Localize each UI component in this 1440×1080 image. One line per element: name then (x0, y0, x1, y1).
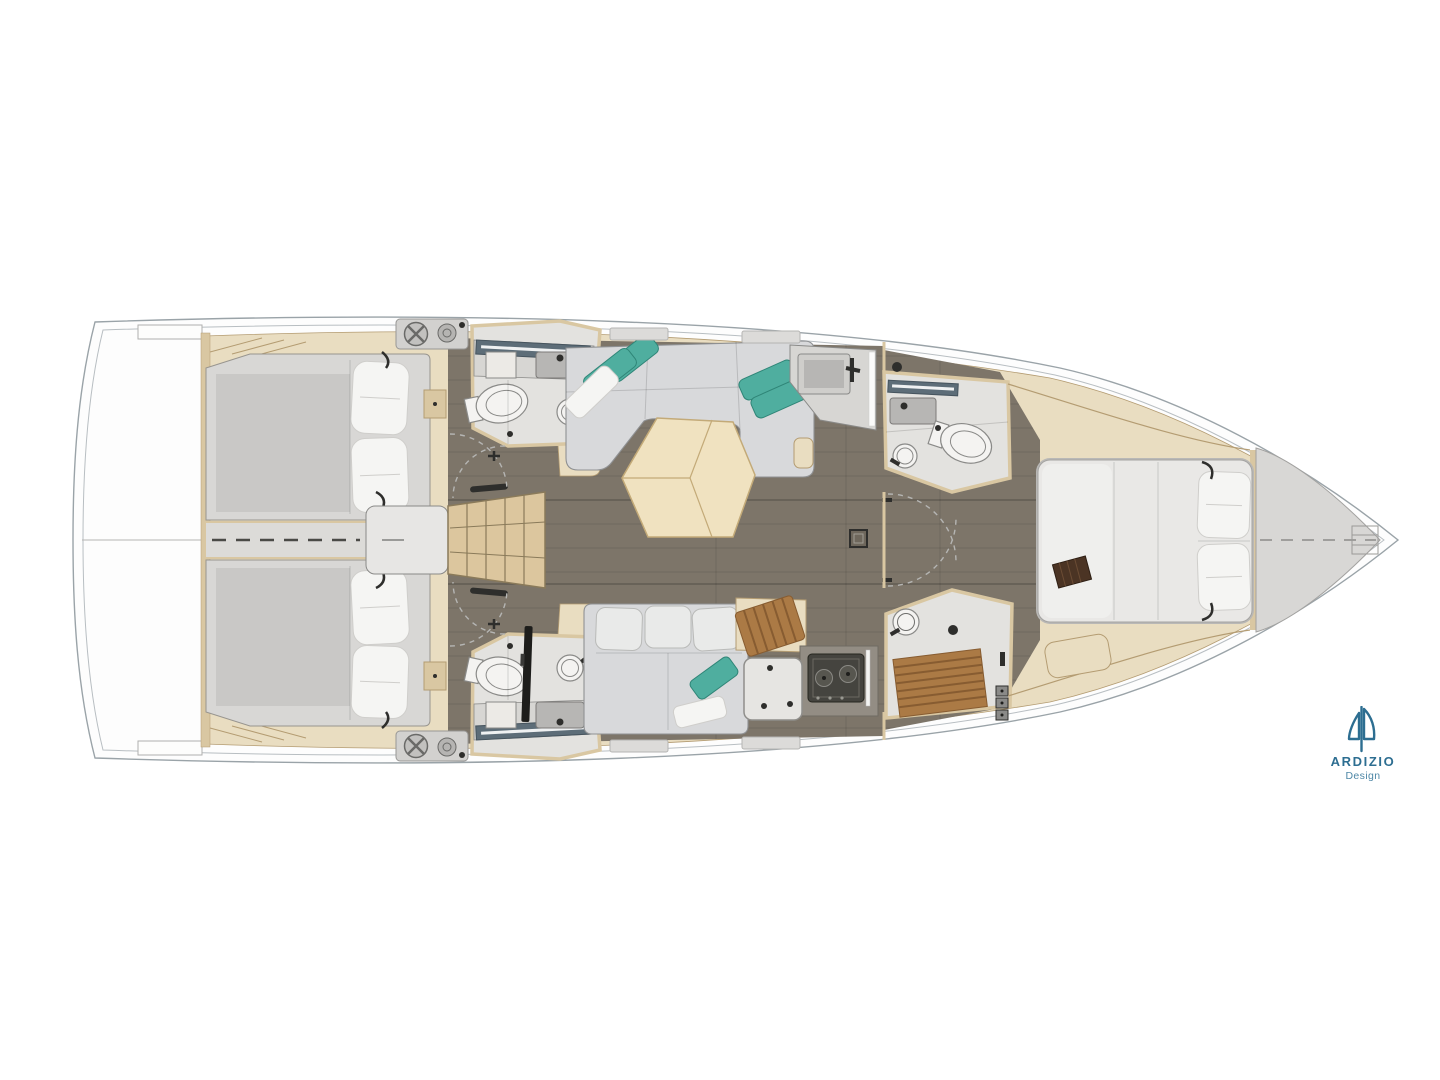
back-cushion (692, 606, 741, 651)
head-room (472, 634, 600, 759)
back-cushion (595, 607, 642, 651)
deck-hatch (610, 740, 668, 752)
teak-grate (893, 649, 987, 717)
faucet (901, 403, 908, 410)
winch-pod-starboard (396, 731, 468, 761)
aft-cabin-starboard (206, 560, 446, 728)
bow-locker (1256, 448, 1380, 632)
faucet (557, 355, 564, 362)
aft-bed-port-mattress (216, 374, 350, 512)
stern-step-port (138, 325, 202, 339)
floorplan-drawing (0, 0, 1440, 1080)
head-forward (884, 362, 1010, 492)
winch-pod-port (396, 319, 468, 349)
aft-cabin-port (206, 352, 446, 520)
aft-bed-starboard-mattress (216, 568, 350, 706)
shower-head (948, 625, 958, 635)
fridge (744, 658, 802, 720)
brand-name: ARDIZIO (1318, 754, 1408, 769)
round-sink (557, 655, 583, 681)
winch-icon (438, 738, 456, 756)
sofa-trim (794, 438, 813, 468)
winch-icon (438, 324, 456, 342)
stern-step-starboard (138, 741, 202, 755)
door-handle (1000, 652, 1005, 666)
sink (890, 398, 936, 424)
deck-hatch (742, 737, 800, 749)
deck-hatch (610, 328, 668, 340)
master-bed (1036, 458, 1254, 624)
engine-hatch (366, 506, 448, 574)
brand-logo: ARDIZIO Design (1318, 706, 1408, 782)
cabinet (486, 352, 516, 378)
floor-hatch (850, 530, 867, 547)
yacht-floorplan: ARDIZIO Design (0, 0, 1440, 1080)
faucet (557, 719, 564, 726)
shower-forward (886, 590, 1012, 720)
back-cushion (645, 606, 691, 648)
towel-rail (869, 352, 875, 426)
vent (892, 362, 902, 372)
stove (808, 654, 864, 702)
deck-hatch (742, 331, 800, 343)
sailboat-logo-icon (1343, 706, 1383, 754)
salon-sofa-starboard (584, 604, 748, 734)
brand-tagline: Design (1318, 770, 1408, 782)
control-panel (996, 686, 1008, 720)
pot-rail (866, 650, 870, 706)
cabinet (486, 702, 516, 728)
bed-throw (1042, 464, 1112, 618)
